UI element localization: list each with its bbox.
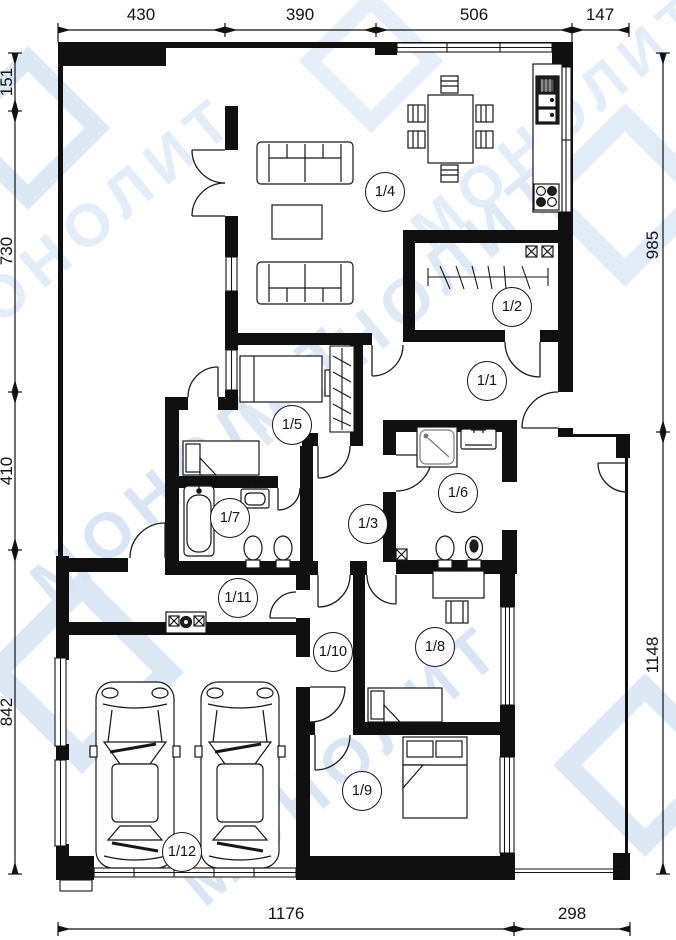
dim-top-4: 147	[586, 5, 614, 25]
washbasin	[461, 427, 496, 449]
coffee-table	[272, 205, 322, 239]
chair	[476, 105, 493, 122]
door	[310, 687, 345, 722]
room-label-1-7: 1/7	[210, 498, 250, 538]
room-label-1-2: 1/2	[492, 287, 532, 327]
chair	[446, 601, 468, 623]
dining-table	[428, 95, 473, 163]
desk	[240, 356, 322, 402]
entry-step	[60, 880, 92, 891]
chair	[441, 76, 458, 93]
bidet	[274, 536, 292, 568]
door	[598, 463, 627, 492]
glazed-partition	[226, 350, 237, 390]
toilet	[244, 536, 262, 568]
bed-single	[368, 688, 442, 722]
wardrobe	[330, 346, 354, 432]
room-label-1-4: 1/4	[365, 172, 405, 212]
door	[270, 592, 296, 618]
room-label-1-5: 1/5	[272, 405, 312, 445]
room-label-1-8: 1/8	[415, 627, 455, 667]
furniture	[90, 64, 562, 868]
window	[55, 760, 66, 846]
room-label-1-3: 1/3	[348, 504, 388, 544]
dim-bottom-1: 1176	[268, 904, 305, 924]
door	[367, 575, 396, 604]
door	[372, 345, 403, 376]
sofa	[257, 142, 353, 184]
window	[500, 757, 514, 853]
chair	[476, 131, 493, 148]
kitchen-sink	[536, 76, 559, 124]
glazed-partition	[226, 257, 237, 291]
dim-top-1: 430	[127, 5, 155, 25]
door	[130, 523, 165, 558]
terrace-edge	[515, 869, 625, 873]
dim-top-2: 390	[286, 5, 314, 25]
dim-left-1: 151	[0, 68, 17, 96]
dim-left-2: 730	[0, 237, 17, 265]
wardrobe-rail	[428, 266, 548, 289]
window	[397, 43, 552, 52]
room-label-1-1: 1/1	[467, 361, 507, 401]
door	[505, 342, 540, 377]
chair	[441, 165, 458, 182]
room-label-1-6: 1/6	[438, 473, 478, 513]
floor-plan-drawing	[0, 0, 676, 940]
sofa	[257, 262, 353, 304]
car	[195, 682, 285, 868]
stove	[534, 184, 559, 210]
door	[318, 446, 350, 478]
door	[188, 367, 218, 397]
garage-door	[94, 868, 296, 877]
bidet	[466, 537, 483, 569]
dim-bottom-2: 298	[558, 904, 586, 924]
shower	[417, 427, 457, 467]
room-label-1-12: 1/12	[162, 832, 202, 872]
dim-top-3: 506	[460, 5, 488, 25]
chair	[408, 105, 425, 122]
door	[318, 575, 350, 607]
desk	[433, 571, 484, 598]
bed-double	[403, 737, 467, 818]
door	[278, 488, 300, 510]
dim-left-4: 842	[0, 698, 17, 726]
washer-box	[526, 246, 537, 257]
dim-left-3: 410	[0, 457, 17, 485]
door	[315, 735, 350, 770]
room-label-1-10: 1/10	[313, 632, 353, 672]
chair	[408, 131, 425, 148]
toilet	[436, 536, 454, 568]
room-label-1-11: 1/11	[218, 578, 258, 618]
boiler	[166, 612, 206, 633]
dim-right-1: 985	[643, 231, 663, 259]
dim-right-2: 1148	[643, 637, 663, 674]
window	[501, 607, 514, 705]
window	[55, 658, 66, 746]
door	[522, 392, 558, 428]
double-door	[192, 150, 225, 216]
room-label-1-9: 1/9	[342, 771, 382, 811]
washer-box	[396, 549, 407, 560]
floor-plan-canvas: МОНОЛИТ МОНОЛИТ МОНОЛИТ МОНОЛИТ МОНОЛИТ	[0, 0, 676, 940]
bed-single	[183, 441, 259, 475]
washer-box	[542, 246, 553, 257]
